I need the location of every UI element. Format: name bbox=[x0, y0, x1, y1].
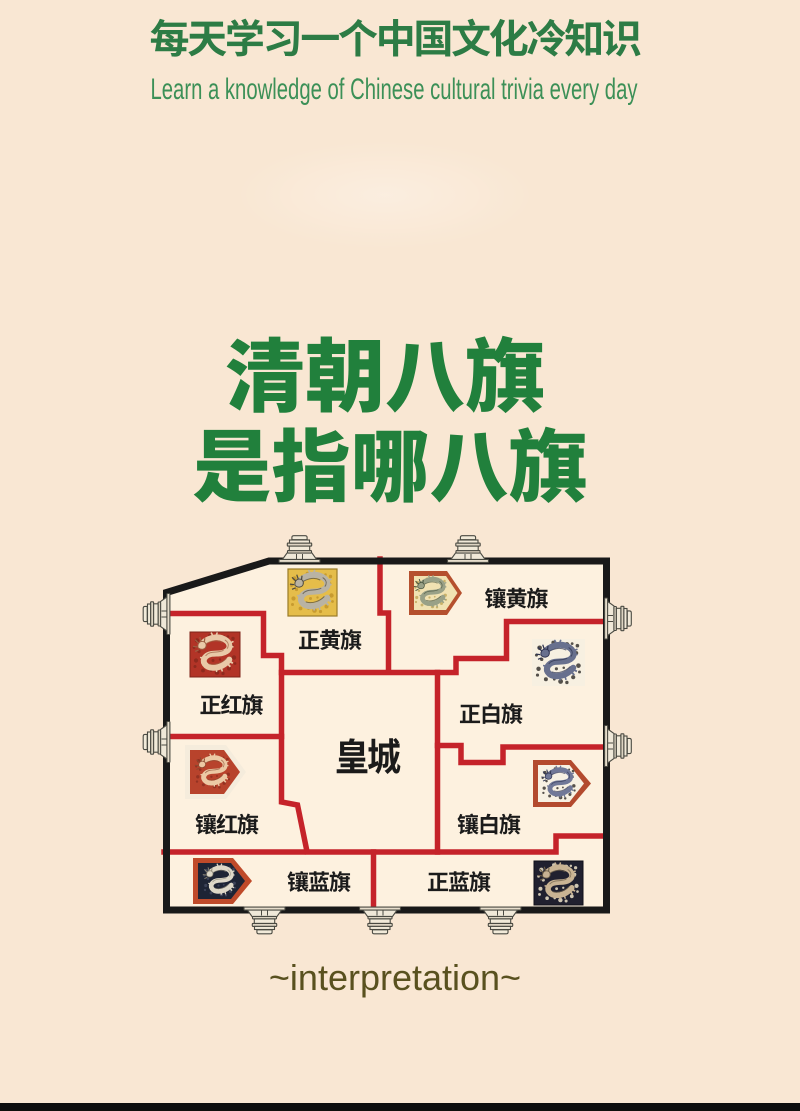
svg-text:~interpretation~: ~interpretation~ bbox=[269, 957, 521, 998]
svg-text:Learn a knowledge of Chinese c: Learn a knowledge of Chinese cultural tr… bbox=[151, 73, 638, 106]
